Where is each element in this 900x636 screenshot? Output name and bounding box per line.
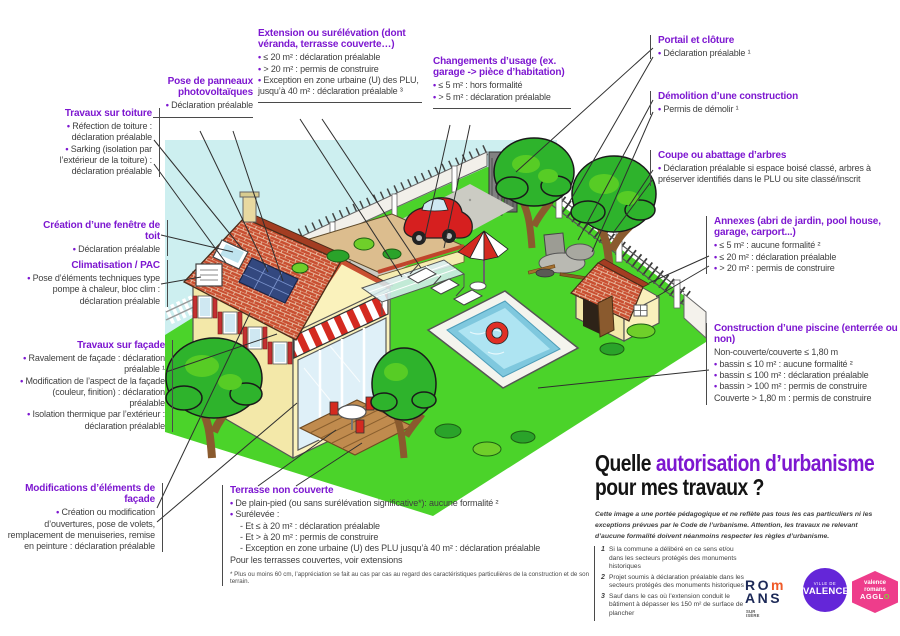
label-footnote: * Plus ou moins 60 cm, l’appréciation se… [230,571,592,587]
label-title: Construction d’une piscine (enterrée ou … [714,323,900,345]
title-prefix: Quelle [595,450,656,476]
footnote: 1Si la commune a délibéré en ce sens et/… [601,546,747,572]
label-item: > 5 m² : déclaration préalable [433,92,571,103]
footnote-text: Si la commune a délibéré en ce sens et/o… [609,546,737,570]
label-title: Extension ou surélévation (dont véranda,… [258,28,422,50]
title-line-1: Quelle autorisation d’urbanisme [595,452,841,476]
label-title: Annexes (abri de jardin, pool house, gar… [714,216,882,238]
footnotes: 1Si la commune a délibéré en ce sens et/… [594,546,747,621]
chair [330,402,338,415]
label-climatisation-pac: Climatisation / PAC Pose d’éléments tech… [18,260,168,307]
ville-de-valence-logo: VILLE DE VALENCE [803,568,847,612]
label-item: ≤ 20 m² : déclaration préalable [714,252,882,263]
label-title: Terrasse non couverte [230,485,592,496]
label-item: Pour les terrasses couvertes, voir exten… [230,555,592,566]
footnote-text: Sauf dans le cas où l’extension conduit … [609,593,743,617]
footnote-number: 1 [601,545,605,554]
shed-door [598,296,614,337]
footnote: 3Sauf dans le cas où l’extension conduit… [601,593,747,619]
label-item: ≤ 20 m² : déclaration préalable [258,52,422,63]
title-highlight: autorisation d’urbanisme [656,450,874,476]
label-terrasse-non-couverte: Terrasse non couverte De plain-pied (ou … [222,485,592,586]
footnote-number: 3 [601,592,605,601]
label-item: ≤ 5 m² : hors formalité [433,80,571,91]
label-extension-surelevation: Extension ou surélévation (dont véranda,… [258,28,422,103]
label-title: Travaux sur toiture [38,108,152,119]
chair [356,420,364,433]
label-annexes: Annexes (abri de jardin, pool house, gar… [706,216,882,274]
label-item: Ravalement de façade : déclaration préal… [20,353,165,376]
label-item: - Et ≤ à 20 m² : déclaration préalable [230,521,592,532]
label-title: Démolition d’une construction [658,91,833,102]
label-item: ≤ 5 m² : aucune formalité ² [714,240,882,251]
page-title: Quelle autorisation d’urbanisme pour mes… [595,452,895,500]
label-item: bassin ≤ 10 m² : aucune formalité ² [714,359,900,370]
label-changements-usage: Changements d’usage (ex. garage -> pièce… [433,56,571,109]
agglo-line1: valence [852,580,898,587]
air-conditioner [196,264,222,286]
label-item: - Exception en zone urbaine (U) des PLU … [230,543,592,554]
romans-logo-line2: ANSSUR ISÈRE [745,592,797,619]
label-demolition: Démolition d’une construction Permis de … [650,91,833,115]
label-fenetre-de-toit: Création d’une fenêtre de toit Déclarati… [28,220,168,256]
label-title: Portail et clôture [658,35,818,46]
label-item: > 20 m² : permis de construire [258,64,422,75]
agglo-aggl: AGGL [860,592,884,601]
agglo-green-o: O [884,592,890,601]
label-item: - Et > à 20 m² : permis de construire [230,532,592,543]
label-item: Sarking (isolation par l’extérieur de la… [38,144,152,178]
label-item: Non-couverte/couverte ≤ 1,80 m [714,347,900,358]
label-panneaux-photovoltaiques: Pose de panneaux photovoltaïques Déclara… [153,76,253,118]
label-item: De plain-pied (ou sans surélévation sign… [230,498,592,509]
footnote-number: 2 [601,573,605,582]
label-item: Déclaration préalable si espace boisé cl… [658,163,896,186]
label-item: Réfection de toiture : déclaration préal… [38,121,152,144]
label-item: Déclaration préalable ¹ [658,48,818,59]
label-item: > 20 m² : permis de construire [714,263,882,274]
label-item: bassin > 100 m² : permis de construire [714,381,900,392]
label-item: Création ou modification d’ouvertures, p… [5,507,155,552]
label-item: Déclaration préalable [28,244,160,255]
romans-sur-isere-logo: ROm ANSSUR ISÈRE [745,579,797,619]
label-item: Surélevée : [230,509,592,520]
label-item: Déclaration préalable [153,100,253,111]
label-piscine: Construction d’une piscine (enterrée ou … [706,323,900,405]
label-title: Coupe ou abattage d’arbres [658,150,896,161]
title-line-2: pour mes travaux ? [595,476,841,500]
label-item: Modification de l’aspect de la façade (c… [20,376,165,410]
romans-ans: ANS [745,590,782,606]
label-modifications-facade: Modifications d’éléments de façade Créat… [5,483,163,552]
label-title: Travaux sur façade [20,340,165,351]
label-travaux-toiture: Travaux sur toiture Réfection de toiture… [38,108,160,177]
infographic-canvas: Travaux sur toiture Réfection de toiture… [0,0,900,636]
garden-table [338,405,366,419]
label-coupe-abattage-arbres: Coupe ou abattage d’arbres Déclaration p… [650,150,896,186]
label-title: Création d’une fenêtre de toit [28,220,160,242]
label-item: Permis de démolir ¹ [658,104,833,115]
label-title: Pose de panneaux photovoltaïques [153,76,253,98]
romans-sub: SUR ISÈRE [746,610,760,619]
label-title: Changements d’usage (ex. garage -> pièce… [433,56,571,78]
label-travaux-facade: Travaux sur façade Ravalement de façade … [20,340,173,432]
label-title: Climatisation / PAC [18,260,160,271]
footnote-text: Projet soumis à déclaration préalable da… [609,574,744,590]
label-item: Pose d’éléments techniques type pompe à … [18,273,160,307]
valence-logo-name: VALENCE [803,586,847,597]
label-title: Modifications d’éléments de façade [5,483,155,505]
footnote: 2Projet soumis à déclaration préalable d… [601,574,747,591]
chimney [240,192,259,222]
label-item: bassin ≤ 100 m² : déclaration préalable [714,370,900,381]
agglo-line3: AGGLO [852,593,898,601]
label-item: Exception en zone urbaine (U) des PLU, j… [258,75,422,98]
label-item: Isolation thermique par l’extérieur : dé… [20,409,165,432]
label-item: Couverte > 1,80 m : permis de construire [714,393,900,404]
disclaimer-text: Cette image a une portée pédagogique et … [595,509,887,543]
label-portail-cloture: Portail et clôture Déclaration préalable… [650,35,818,59]
